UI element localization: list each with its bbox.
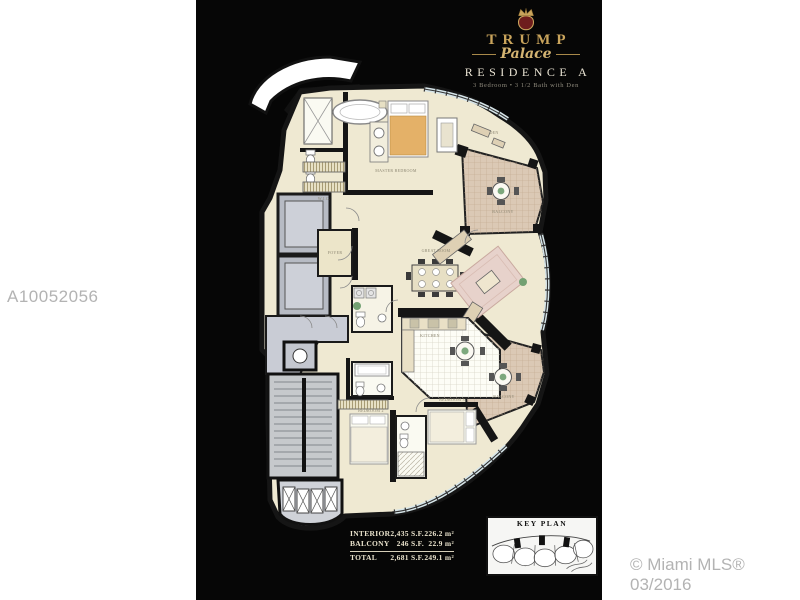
room-label-den: DEN [489, 130, 498, 135]
room-label-bedroom-3: BEDROOM 3 [439, 397, 465, 402]
floor-plan: MASTER BEDROOM GREAT ROOM KITCHEN DEN FO… [196, 0, 602, 600]
bath-3 [396, 416, 426, 478]
room-label-foyer: FOYER [328, 250, 343, 255]
gold-rule-left [472, 54, 496, 55]
key-plan-diagram [488, 528, 594, 572]
area-label: BALCONY [350, 539, 390, 549]
dining-table [406, 259, 465, 297]
area-label: INTERIOR [350, 529, 390, 539]
area-sm: 226.2 m² [424, 529, 454, 539]
entry-vestibule [278, 480, 342, 525]
brand-script: Palace [496, 46, 555, 62]
copyright-watermark: © Miami MLS® 03/2016 [630, 555, 800, 595]
residence-title: RESIDENCE A [455, 65, 597, 80]
key-plan-title: KEY PLAN [488, 519, 596, 528]
bedroom-3-bed [428, 410, 476, 444]
room-label-great-room: GREAT ROOM [422, 248, 451, 253]
area-row-interior: INTERIOR 2,435 S.F. 226.2 m² [350, 529, 454, 539]
area-label: TOTAL [350, 553, 390, 563]
area-sf: 2,435 S.F. [390, 529, 424, 539]
room-label-master-bedroom: MASTER BEDROOM [375, 168, 417, 173]
area-row-balcony: BALCONY 246 S.F. 22.9 m² [350, 539, 454, 549]
residence-subtitle: 3 Bedroom • 3 1/2 Bath with Den [455, 82, 597, 89]
bath-2 [352, 362, 392, 396]
area-table: INTERIOR 2,435 S.F. 226.2 m² BALCONY 246… [350, 529, 454, 563]
area-sf: 246 S.F. [390, 539, 424, 549]
room-label-wic: W.I.C. [318, 196, 330, 201]
room-label-kitchen: KITCHEN [420, 333, 440, 338]
area-sm: 22.9 m² [424, 539, 454, 549]
room-label-balcony-upper: BALCONY [492, 209, 513, 214]
bedroom-2-bed [350, 414, 388, 464]
stairwell [268, 374, 338, 478]
trash-room [284, 342, 316, 370]
room-label-bedroom-2: BEDROOM 2 [358, 408, 384, 413]
area-sf: 2,681 S.F. [390, 553, 424, 563]
gold-rule-right [556, 54, 580, 55]
screenshot: MASTER BEDROOM GREAT ROOM KITCHEN DEN FO… [0, 0, 800, 600]
key-plan: KEY PLAN [486, 516, 598, 576]
area-sm: 249.1 m² [424, 553, 454, 563]
area-row-total: TOTAL 2,681 S.F. 249.1 m² [350, 551, 454, 563]
brand-logo: TRUMP Palace RESIDENCE A 3 Bedroom • 3 1… [455, 7, 597, 89]
brand-script-row: Palace [455, 46, 597, 62]
crown-crest-icon [511, 7, 541, 31]
listing-id-watermark: A10052056 [7, 287, 98, 307]
room-label-balcony-lower: BALCONY [493, 394, 514, 399]
